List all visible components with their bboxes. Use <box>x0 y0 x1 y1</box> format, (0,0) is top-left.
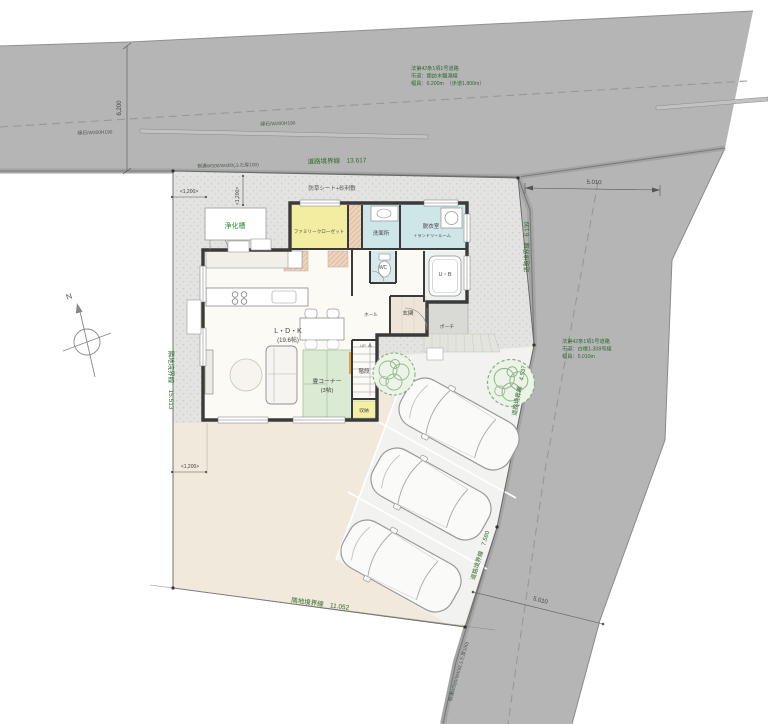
dining-table <box>300 318 344 340</box>
room-label-porch: ポーチ <box>440 323 455 330</box>
outdoor-unit <box>251 239 271 250</box>
septic-tank-label: 浄化槽 <box>225 221 246 230</box>
site-plan-svg: 縁石/W200H190縁石/W200H190側溝W500/W400(ふた厚100… <box>0 0 768 724</box>
family-closet-room <box>290 203 348 249</box>
room-label-storage: 収納 <box>359 407 369 414</box>
round-rug <box>230 359 262 391</box>
wash-basin <box>371 206 398 221</box>
north-arrowhead <box>76 303 83 314</box>
room-label-tatami: 畳コーナー <box>313 378 342 385</box>
room-label-wc: WC <box>379 265 388 271</box>
chair <box>305 309 317 318</box>
room-label-family-closet: ファミリークローゼット <box>294 228 345 235</box>
weed-sheet-gravel-label: 防草シート+砂利敷 <box>308 184 356 192</box>
neighbor-boundary-left-label: 隣地境界線 15.513 <box>167 351 176 410</box>
tree-1 <box>373 353 415 395</box>
room-label-genkan: 玄関 <box>402 309 414 317</box>
room-label-ldk-size: (19.6帖) <box>277 336 299 344</box>
outdoor-unit-west <box>187 300 201 334</box>
site-plan-drawing: 縁石/W200H190縁石/W200H190側溝W500/W400(ふた厚100… <box>0 0 768 724</box>
room-label-hall: ホール <box>364 312 378 317</box>
room-label-tatami-size: (3帖) <box>321 386 334 394</box>
dim-1200-bottom-left: <1,200> <box>181 464 199 470</box>
room-label-senmenjo: 洗面所 <box>373 229 390 237</box>
north-letter: N <box>65 291 74 302</box>
room-label-stairs: 階段 <box>358 367 370 375</box>
sofa <box>266 346 297 404</box>
road-boundary-right-label: 道路境界線 6.139 <box>523 221 531 273</box>
washing-machine <box>441 208 462 228</box>
dim-6200: 6,200 <box>117 100 123 116</box>
toilet-tank <box>379 254 390 260</box>
refrigerator <box>288 251 302 268</box>
room-label-datsuishitsu: 脱衣室 <box>423 222 440 230</box>
pantry-closet-2 <box>328 251 348 267</box>
porch-step <box>427 348 443 360</box>
chair <box>327 340 339 349</box>
main-road <box>0 11 768 177</box>
north-arrow <box>63 303 111 377</box>
dim-1200-top-mid: <1,200> <box>235 187 241 205</box>
room-label-up: UP <box>360 343 366 348</box>
chair <box>305 340 317 349</box>
outdoor-unit <box>228 241 249 252</box>
chair <box>327 309 339 318</box>
closet <box>348 205 362 249</box>
dim-5010-top: 5.010 <box>586 180 602 187</box>
room-label-ub: U・B <box>438 272 451 278</box>
room-label-ldk: L・D・K <box>274 328 302 335</box>
kitchen-back-counter <box>206 251 302 268</box>
dim-1200-top-left: <1,200> <box>180 189 198 195</box>
